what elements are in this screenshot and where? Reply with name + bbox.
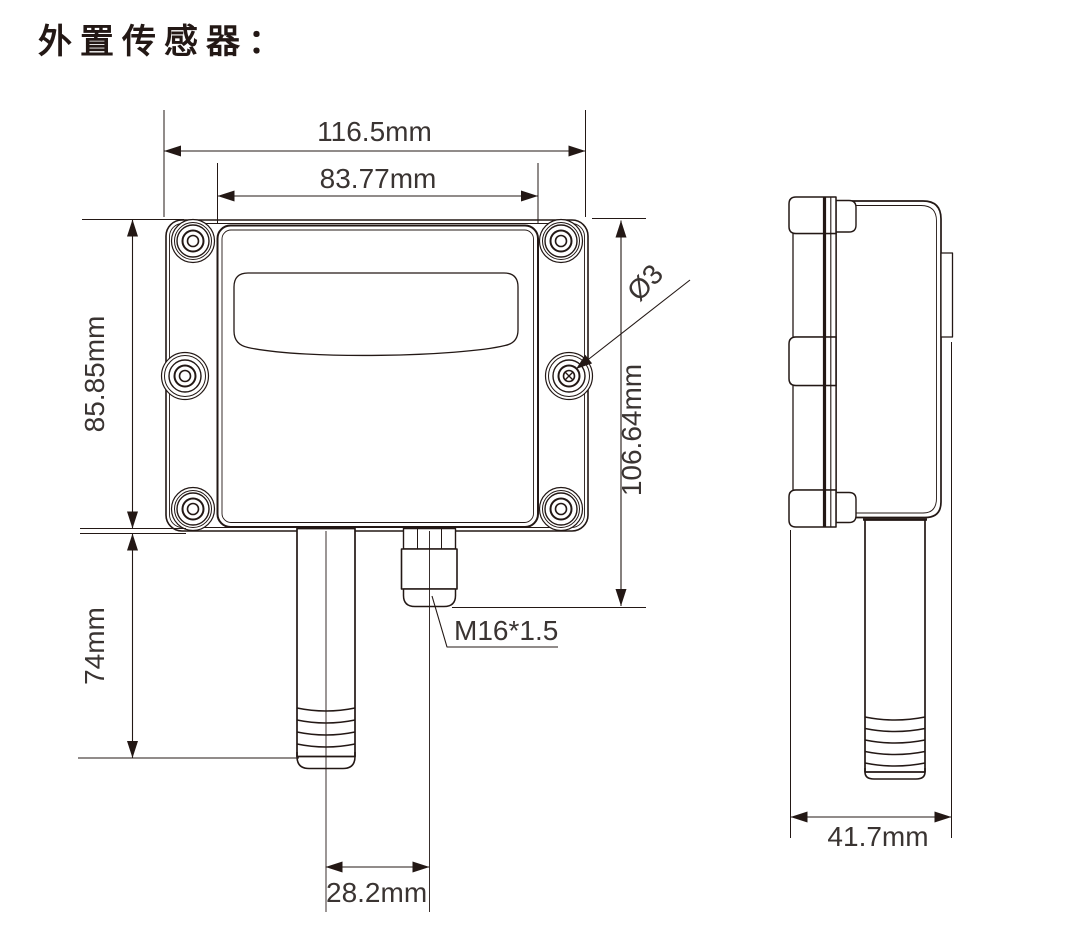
side-top-tab [836,201,856,233]
arrowhead [569,146,586,157]
technical-drawing: 外置传感器： [0,0,1080,928]
arrowhead [127,512,138,529]
screw-top-left [177,225,209,257]
arrowhead [935,812,952,823]
dim-label-gland-thread: M16*1.5 [454,615,558,646]
side-body [836,201,941,518]
arrowhead [521,191,538,202]
dim-label-probe-offset: 28.2mm [326,877,427,908]
arrowhead [127,741,138,758]
dim-front-lid-width: 83.77mm [218,163,539,224]
screw-mid-left [169,360,201,392]
arrowhead [616,589,627,606]
side-back-plate [789,197,836,527]
arrowhead [127,220,138,237]
dim-probe-center-offset: 28.2mm [326,862,430,909]
dim-label-probe-length: 74mm [79,607,110,685]
arrowhead [326,862,343,873]
screw-bottom-right [545,493,577,525]
arrowhead [791,812,808,823]
side-bottom-tab [836,493,856,523]
screw-top-right [545,225,577,257]
dim-label-overall-height: 106.64mm [616,364,647,496]
dim-label-side-depth: 41.7mm [827,821,928,852]
dim-label-body-height: 85.85mm [79,316,110,433]
arrowhead [413,862,430,873]
arrowhead [164,146,181,157]
dim-label-lid-width: 83.77mm [320,163,437,194]
sensor-probe-side [863,520,927,780]
front-lid [218,226,539,528]
arrowhead [218,191,235,202]
front-view [162,220,593,913]
label-window [234,273,518,355]
dim-label-hole-diameter: Ø3 [621,258,669,306]
arrowhead [616,221,627,238]
dim-probe-length: 74mm [78,534,299,759]
arrowhead [127,534,138,551]
dim-mount-hole: Ø3 [576,258,690,369]
side-view [789,197,953,779]
side-latch [941,253,953,337]
screw-bottom-left [177,493,209,525]
dim-label-outer-width: 116.5mm [317,116,432,147]
sensor-dimension-diagram: 116.5mm 83.77mm 85.85mm [0,0,1080,928]
